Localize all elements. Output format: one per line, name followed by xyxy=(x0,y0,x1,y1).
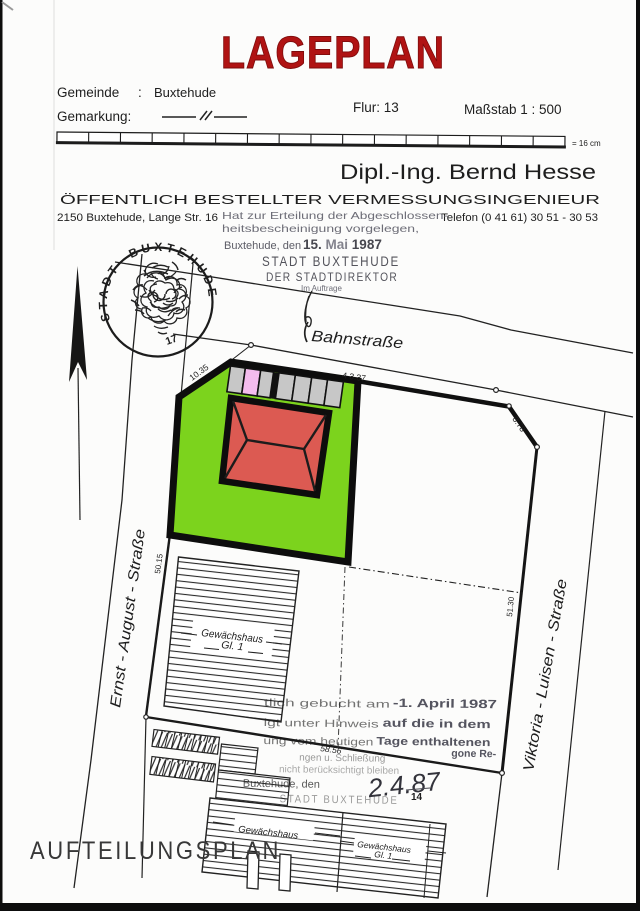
svg-text:= 16 cm: = 16 cm xyxy=(572,139,601,148)
svg-text:Dipl.-Ing. Bernd Hesse: Dipl.-Ing. Bernd Hesse xyxy=(340,161,596,184)
svg-text:Gl. 1: Gl. 1 xyxy=(374,849,393,861)
svg-text:14: 14 xyxy=(411,792,423,803)
svg-text:tlich gebucht am: tlich gebucht am xyxy=(264,697,391,711)
svg-text:LAGEPLAN: LAGEPLAN xyxy=(221,27,445,78)
svg-text:ÖFFENTLICH BESTELLTER VERMESSU: ÖFFENTLICH BESTELLTER VERMESSUNGSINGENIE… xyxy=(60,192,600,207)
svg-text:Maßstab 1 : 500: Maßstab 1 : 500 xyxy=(464,102,562,117)
svg-text:ung vom heutigen: ung vom heutigen xyxy=(263,735,373,749)
svg-text:DER STADTDIREKTOR: DER STADTDIREKTOR xyxy=(266,272,398,284)
svg-text:Buxtehude, den: Buxtehude, den xyxy=(243,778,320,791)
svg-text:Gemeinde: Gemeinde xyxy=(57,85,119,100)
svg-text:Flur: 13: Flur: 13 xyxy=(353,100,399,115)
svg-text:Gemarkung:: Gemarkung: xyxy=(57,109,131,124)
svg-text:-1. April 1987: -1. April 1987 xyxy=(393,696,498,711)
svg-text:15. Mai 1987: 15. Mai 1987 xyxy=(303,237,382,252)
svg-text:Hat zur Erteilung der Abgeschl: Hat zur Erteilung der Abgeschlossen- xyxy=(222,210,449,222)
svg-text:igt unter Hinweis: igt unter Hinweis xyxy=(264,717,379,731)
svg-text:Telefon (0 41 61) 30 51 - 30 5: Telefon (0 41 61) 30 51 - 30 53 xyxy=(441,212,598,224)
svg-text:gone Re-: gone Re- xyxy=(451,748,497,761)
svg-text:auf die in dem: auf die in dem xyxy=(383,718,491,732)
svg-text:2150 Buxtehude, Lange Str. 16: 2150 Buxtehude, Lange Str. 16 xyxy=(57,212,218,224)
svg-text:ngen u. Schließung: ngen u. Schließung xyxy=(299,752,385,764)
svg-text:AUFTEILUNGSPLAN: AUFTEILUNGSPLAN xyxy=(30,837,281,865)
svg-text:Buxtehude: Buxtehude xyxy=(154,85,216,100)
svg-text:STADT BUXTEHUDE: STADT BUXTEHUDE xyxy=(262,254,400,269)
svg-text::: : xyxy=(138,85,142,100)
svg-text:heitsbescheinigung vorgelegen,: heitsbescheinigung vorgelegen, xyxy=(222,223,419,235)
svg-text:Buxtehude, den: Buxtehude, den xyxy=(224,240,301,252)
svg-text:Gl. 1: Gl. 1 xyxy=(221,639,244,653)
